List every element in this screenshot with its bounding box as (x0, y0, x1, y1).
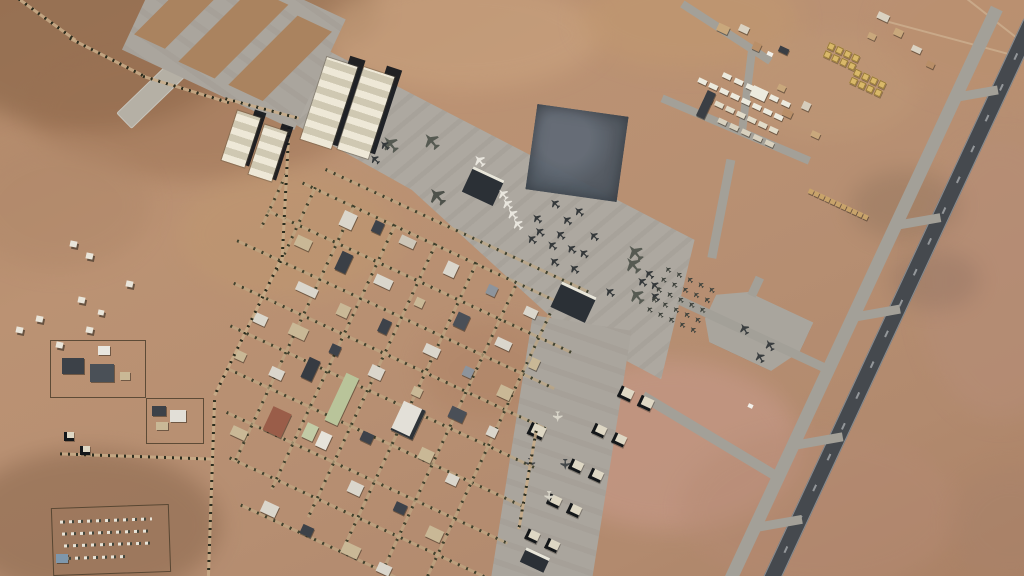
building (393, 501, 408, 515)
compound (90, 364, 114, 382)
building (347, 480, 365, 497)
bunker (85, 326, 93, 333)
building (301, 422, 319, 442)
parked-helicopter (692, 290, 701, 299)
bunker (69, 240, 77, 247)
terrain-patch (680, 430, 960, 576)
trailer (722, 72, 732, 80)
bunker (35, 315, 43, 322)
building (443, 260, 460, 278)
trailer (730, 92, 740, 100)
trailer (719, 87, 729, 95)
blue-roof-building (56, 554, 68, 563)
compound (64, 432, 74, 441)
compound (80, 446, 90, 455)
parked-helicopter (707, 285, 716, 294)
satellite-image-desert-airbase (0, 0, 1024, 576)
compound (152, 406, 166, 416)
bunker (85, 252, 93, 259)
building (377, 318, 392, 335)
parked-helicopter (702, 295, 711, 304)
vehicle-yard-fence (51, 504, 171, 576)
parked-helicopter (685, 275, 694, 284)
building (359, 430, 374, 444)
trailer (725, 106, 735, 114)
red-roof-building (263, 406, 292, 438)
terrain-patch (950, 470, 1024, 576)
bunker (77, 296, 85, 303)
scorched-pad (525, 104, 628, 202)
compound (170, 410, 186, 422)
trailer (747, 116, 757, 124)
building (373, 274, 394, 291)
apron-village-stub (707, 159, 735, 259)
trailer (697, 77, 707, 85)
compound (156, 422, 168, 430)
bunker (125, 280, 133, 287)
compound (98, 346, 110, 355)
building (315, 431, 333, 451)
trailer (714, 101, 724, 109)
building (485, 284, 498, 297)
pad-entrance (747, 276, 764, 298)
trailer (708, 82, 718, 90)
parked-helicopter (696, 280, 705, 289)
parked-helicopter (678, 320, 687, 329)
building (335, 303, 351, 319)
bunker (15, 326, 23, 333)
parked-helicopter (682, 310, 691, 319)
building (340, 541, 361, 559)
compound (120, 372, 130, 380)
parked-helicopter (693, 315, 702, 324)
building (413, 297, 425, 309)
compound (62, 358, 84, 374)
parked-helicopter (689, 325, 698, 334)
bunker (98, 309, 105, 315)
